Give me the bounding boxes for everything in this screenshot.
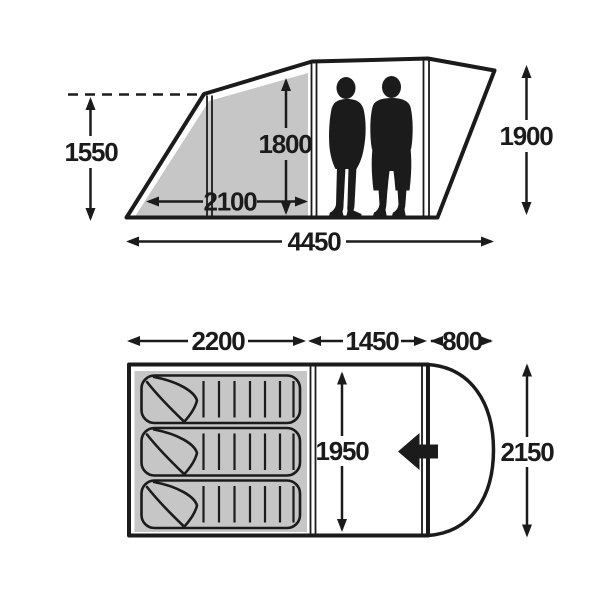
interior-height-label: 1800 [258,129,312,159]
max-height-label: 1900 [499,121,553,151]
living-room-length-label: 1450 [345,326,399,356]
dimension-overall-length: 4450 [126,227,494,257]
bedroom-length-label: 2200 [191,326,245,356]
inner-width-label: 1950 [315,436,369,466]
dimension-living-room-length: 1450 [308,326,427,356]
floor-plan: 2200 1450 800 1950 [127,326,554,538]
peak-height-label: 1550 [64,137,118,167]
dimension-peak-height: 1550 [64,97,118,221]
tent-dimension-diagram: 1550 1800 2100 1900 [0,0,601,600]
porch-depth-label: 800 [442,326,483,356]
dimension-overall-width: 2150 [500,364,554,538]
dimension-bedroom-length: 2200 [127,326,306,356]
bedroom-floor-length-label: 2100 [203,187,257,217]
side-view: 1550 1800 2100 1900 [64,59,553,257]
overall-width-label: 2150 [500,437,554,467]
dimension-max-height: 1900 [499,65,553,215]
diagram-canvas: 1550 1800 2100 1900 [0,0,601,600]
overall-length-label: 4450 [287,227,341,257]
dimension-porch-depth: 800 [430,326,493,356]
